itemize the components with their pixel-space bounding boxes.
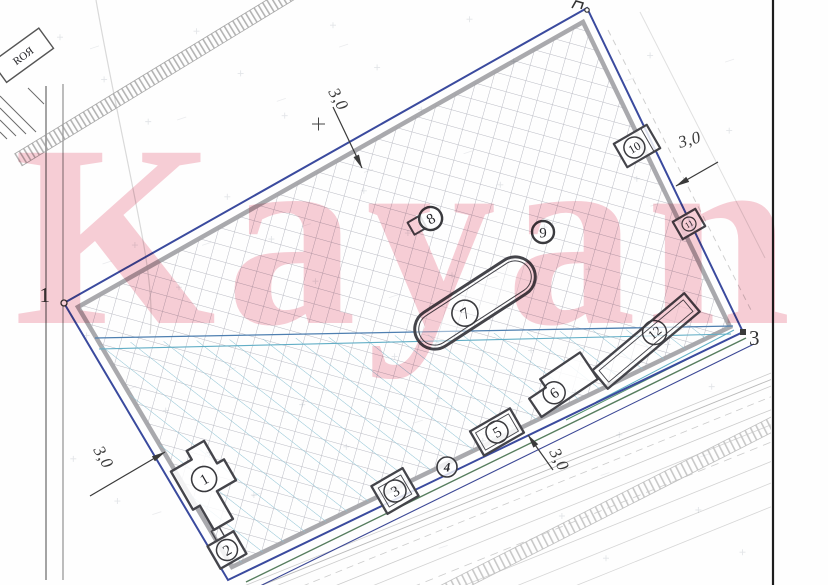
elevation-mark [177,117,186,120]
elevation-mark [238,70,244,76]
corner-point-1 [61,300,67,306]
elevation-mark [603,555,609,561]
elevation-mark [740,549,746,555]
elevation-mark [90,46,99,49]
object-number: 9 [539,225,547,241]
object-marker-9: 9 [532,221,554,243]
elevation-mark [224,194,230,200]
site-plan-drawing: ROЯ 1 3 [0,0,828,585]
site-plan-canvas: ROЯ 1 3 [0,0,828,585]
corner-point-2 [585,8,589,12]
dimension-label: 3,0 [675,127,703,152]
elevation-mark [103,261,112,264]
elevation-mark [101,76,107,82]
object-number: 4 [443,460,451,475]
corner-label-3: 3 [749,326,760,350]
road-hatch-band-top-left [14,0,303,166]
corner-label-1: 1 [40,283,51,307]
elevation-mark [339,44,348,47]
dimension-label: 3,0 [324,84,352,114]
dimension-label: 3,0 [89,442,117,472]
elevation-mark [725,59,734,62]
elevation-mark [467,16,473,22]
elevation-mark [559,513,565,519]
elevation-mark [601,473,610,476]
corner-point-3 [740,329,746,335]
elevation-mark [374,64,380,70]
elevation-mark [194,28,200,34]
dimension-right: 3,0 [675,127,718,186]
elevation-mark [647,52,653,58]
elevation-mark [282,113,288,119]
elevation-mark [70,456,76,462]
elevation-mark [57,34,63,40]
object-marker-4: 4 [437,457,457,477]
elevation-mark [152,512,161,515]
elevation-mark [277,98,286,101]
elevation-mark [726,128,732,134]
leader-line [676,162,718,186]
elevation-mark [114,498,120,504]
elevation-mark [616,432,622,438]
elevation-mark [145,119,151,125]
elevation-mark [439,545,448,548]
top-corner-tick [572,1,583,9]
sheet-strip-left [46,84,63,580]
elevation-mark [695,507,701,513]
stamp-hatch [0,88,44,139]
dimension-left: 3,0 [89,442,165,496]
elevation-mark [709,384,715,390]
elevation-mark [330,22,336,28]
elevation-mark [132,242,138,248]
cross-tick [312,118,325,131]
